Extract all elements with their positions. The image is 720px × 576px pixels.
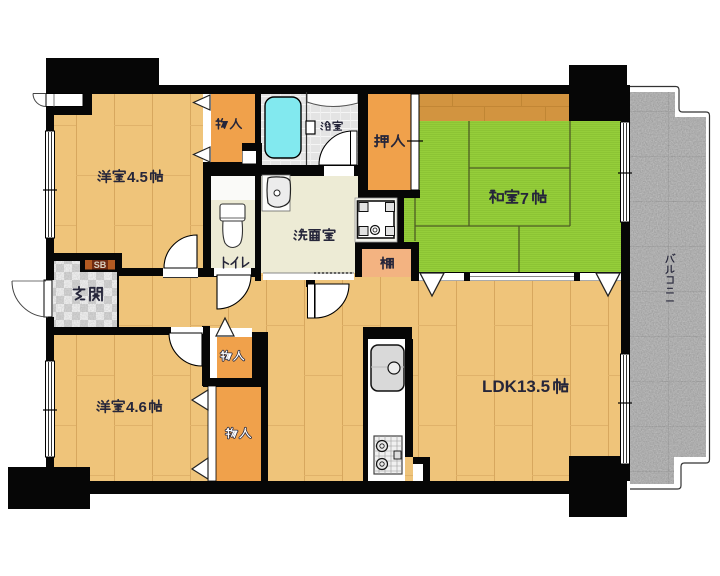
svg-text:LDK13.5: LDK13.5: [482, 377, 550, 396]
svg-text:4.5: 4.5: [127, 169, 148, 186]
svg-text:4.6: 4.6: [126, 399, 147, 416]
svg-text:7: 7: [520, 191, 529, 208]
svg-text:SB: SB: [94, 260, 107, 270]
